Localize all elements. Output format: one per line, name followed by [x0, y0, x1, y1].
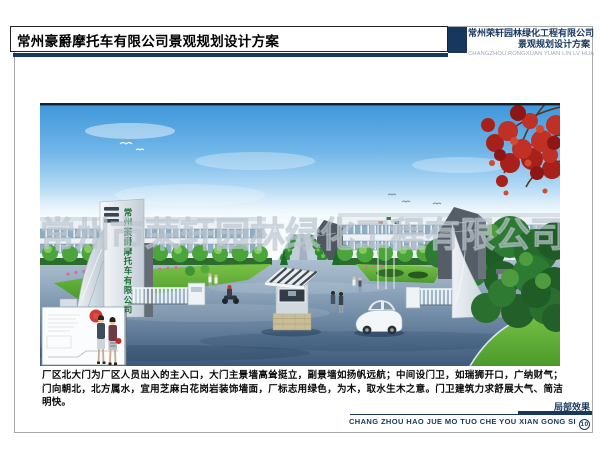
footer-rule [350, 410, 592, 415]
title-box: 常州豪爵摩托车有限公司景观规划设计方案 [10, 26, 448, 52]
company-subtitle: 景观规划设计方案 [468, 39, 590, 50]
footer-pinyin-text: CHANG ZHOU HAO JUE MO TUO CHE YOU XIAN G… [349, 417, 576, 426]
company-pinyin: CHANGZHOU RONGXUAN YUAN LIN LV HUA [468, 50, 590, 59]
header-company-block: 常州荣轩园林绿化工程有限公司 景观规划设计方案 CHANGZHOU RONGXU… [468, 28, 590, 59]
fence-right [406, 287, 452, 308]
title-underline [13, 53, 448, 57]
rendering-image: 常州豪爵摩托车有限公司 常州市荣轩园林绿化工程有限公司 [40, 103, 560, 366]
page-title: 常州豪爵摩托车有限公司景观规划设计方案 [11, 27, 447, 50]
sheet-number-badge: 10 [579, 419, 590, 430]
company-name: 常州荣轩园林绿化工程有限公司 [468, 28, 590, 39]
photo-top-edge [40, 103, 560, 105]
caption-paragraph: 厂区北大门为厂区人员出入的主入口，大门主景墙高耸挺立，副景墙如扬帆远航；中间设门… [42, 369, 563, 410]
footer-rule-thin [350, 414, 518, 416]
footer-pinyin: CHANG ZHOU HAO JUE MO TUO CHE YOU XIAN G… [349, 417, 590, 430]
rendering-scene [40, 103, 560, 366]
header-accent-square [448, 27, 467, 53]
gate-sign-text: 常州豪爵摩托车有限公司 [119, 204, 136, 318]
footer-rule-thick [518, 411, 592, 415]
